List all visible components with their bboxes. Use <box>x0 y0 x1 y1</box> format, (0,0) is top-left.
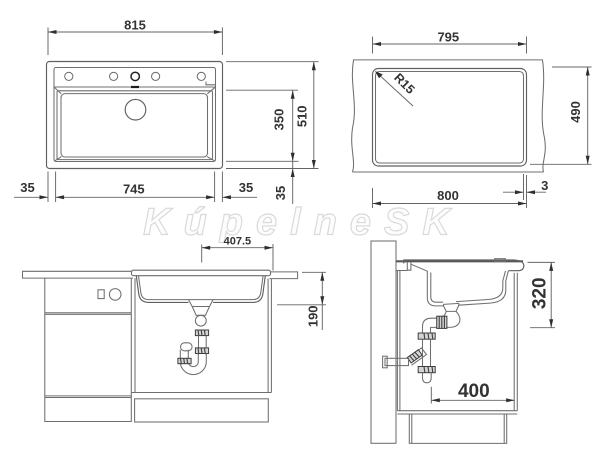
svg-text:400: 400 <box>458 381 490 402</box>
svg-text:35: 35 <box>273 186 288 200</box>
svg-text:490: 490 <box>568 101 583 123</box>
svg-text:815: 815 <box>124 18 146 33</box>
svg-text:795: 795 <box>437 30 459 45</box>
svg-text:510: 510 <box>295 105 310 127</box>
svg-text:35: 35 <box>20 180 34 195</box>
svg-text:190: 190 <box>305 305 320 327</box>
svg-text:407.5: 407.5 <box>224 236 252 248</box>
svg-text:3: 3 <box>541 178 548 193</box>
svg-text:320: 320 <box>530 277 551 309</box>
svg-text:KúpelneSK: KúpelneSK <box>143 202 463 244</box>
svg-text:745: 745 <box>123 182 145 197</box>
svg-text:35: 35 <box>239 180 253 195</box>
svg-text:350: 350 <box>272 109 287 131</box>
svg-text:800: 800 <box>437 188 459 203</box>
